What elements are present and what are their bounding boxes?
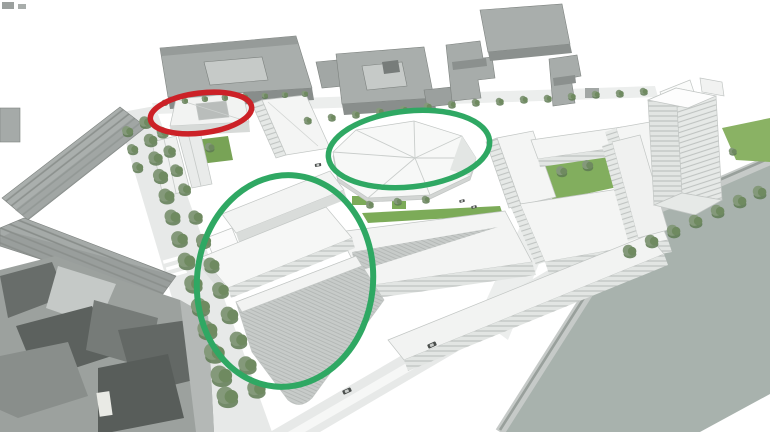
courtyard-block-north [336, 47, 436, 115]
edge-building-fragment [0, 108, 20, 142]
edge-building-fragment [18, 4, 26, 9]
edge-building-fragment [2, 2, 14, 9]
rendering-canvas [0, 0, 770, 432]
north-grey-block [480, 4, 572, 61]
massing-model-view [0, 0, 770, 432]
